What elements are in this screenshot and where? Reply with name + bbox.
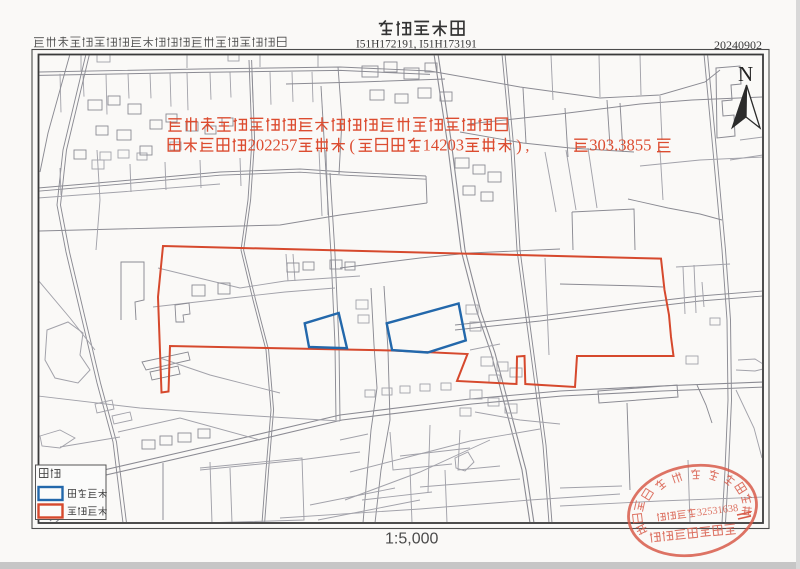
svg-text:202257: 202257 [248, 136, 298, 155]
svg-text:): ) [516, 136, 522, 155]
svg-text:(: ( [349, 136, 355, 155]
svg-text:32531638: 32531638 [696, 503, 739, 519]
svg-text:1:5,000: 1:5,000 [385, 531, 438, 548]
svg-text:14203: 14203 [423, 136, 464, 155]
svg-text:N: N [738, 62, 753, 86]
svg-text:303.3855: 303.3855 [589, 136, 651, 155]
svg-text:,: , [525, 138, 529, 155]
svg-text:I51H172191, I51H173191: I51H172191, I51H173191 [356, 39, 477, 51]
